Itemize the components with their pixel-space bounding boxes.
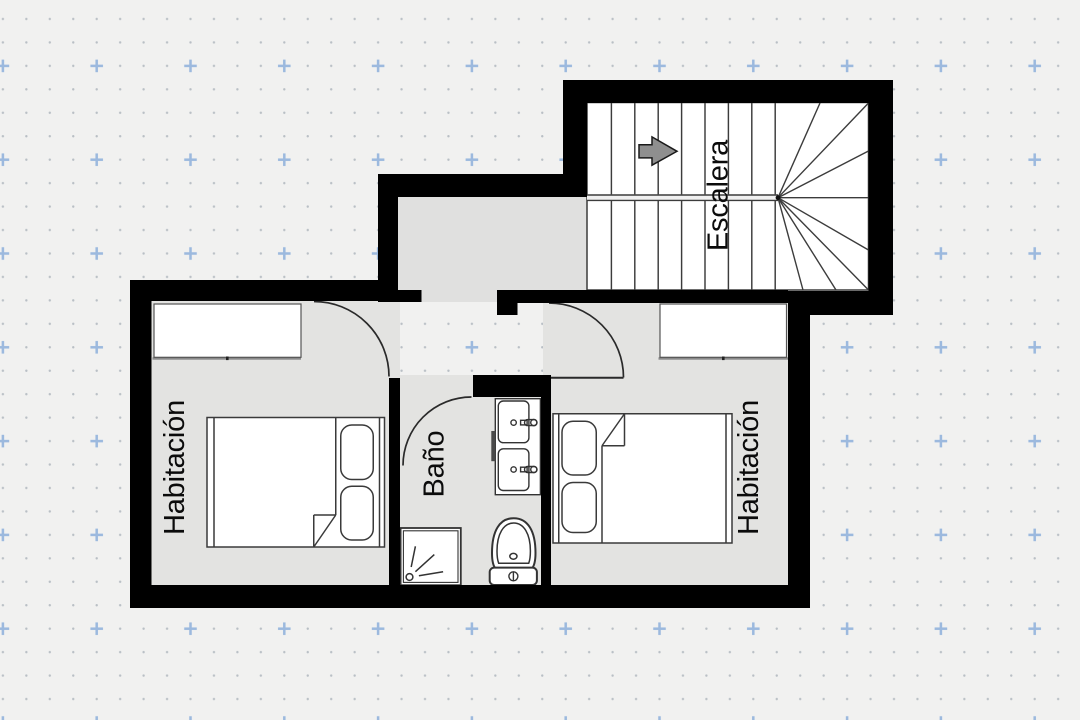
svg-text:Habitación: Habitación	[159, 400, 191, 535]
svg-text:Habitación: Habitación	[733, 400, 765, 535]
svg-text:Escalera: Escalera	[703, 139, 735, 251]
svg-text:Baño: Baño	[418, 431, 450, 498]
